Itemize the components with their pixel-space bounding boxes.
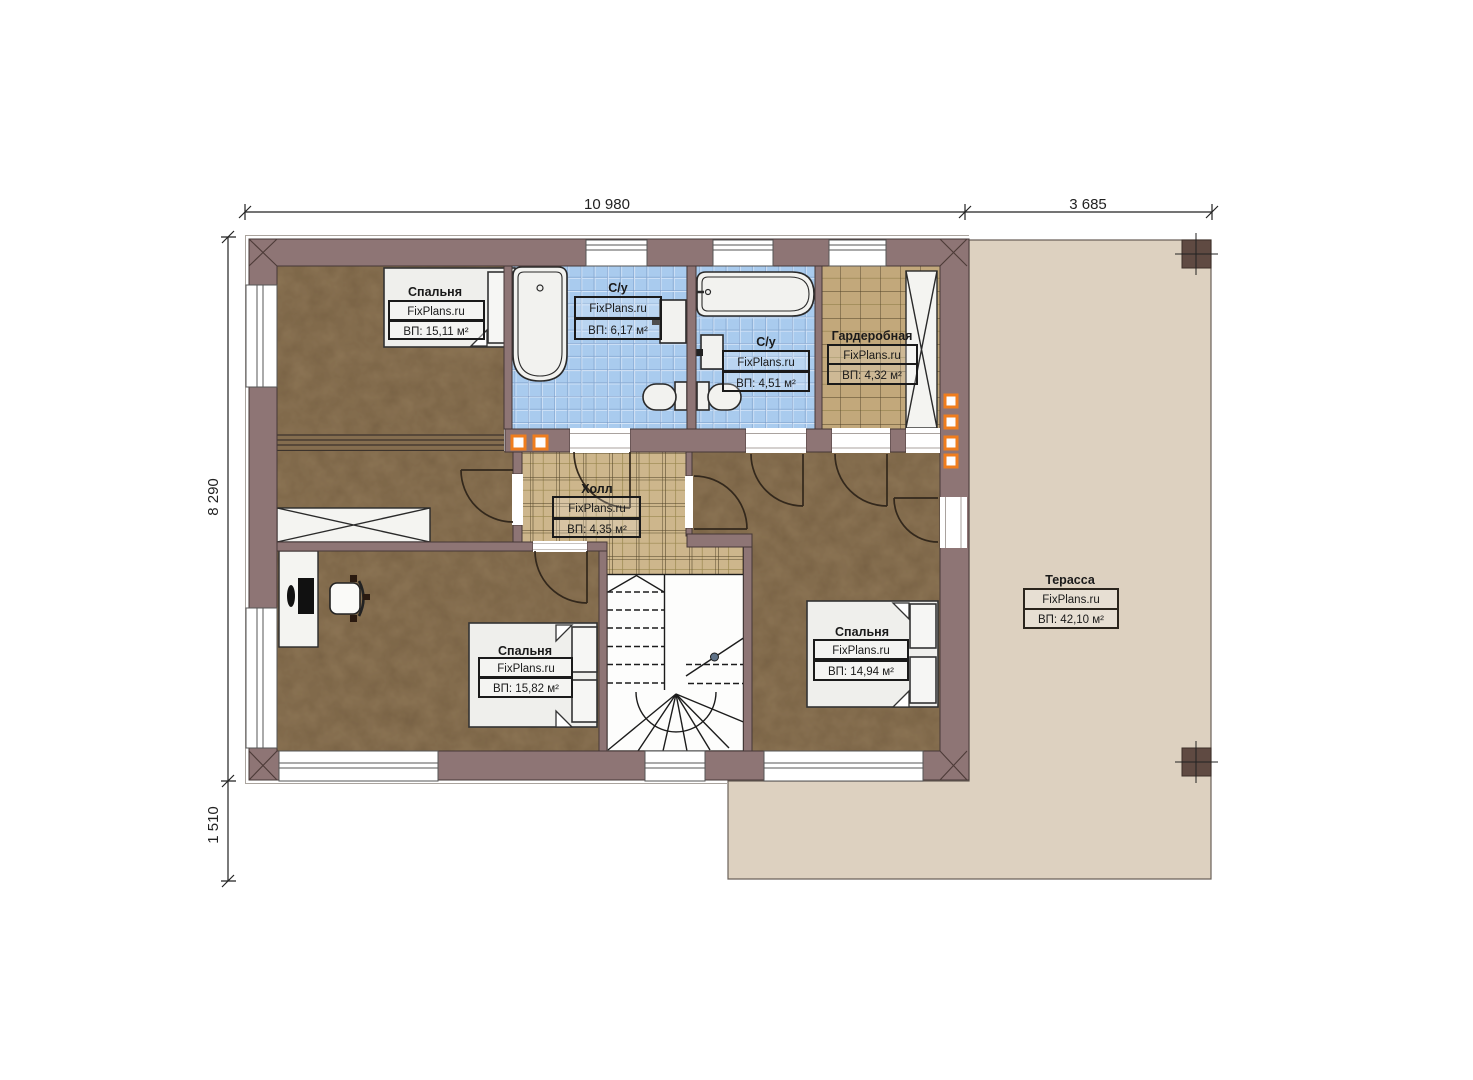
svg-text:10 980: 10 980: [584, 196, 630, 213]
svg-text:FixPlans.ru: FixPlans.ru: [407, 306, 465, 318]
svg-text:Спальня: Спальня: [498, 644, 552, 658]
svg-text:ВП: 4,51 м²: ВП: 4,51 м²: [736, 378, 796, 390]
svg-text:FixPlans.ru: FixPlans.ru: [1042, 594, 1100, 606]
svg-text:ВП: 6,17 м²: ВП: 6,17 м²: [588, 325, 648, 337]
svg-text:ВП: 15,82 м²: ВП: 15,82 м²: [493, 683, 559, 695]
svg-text:ВП: 15,11 м²: ВП: 15,11 м²: [403, 326, 468, 338]
svg-text:С/у: С/у: [756, 335, 776, 349]
svg-text:FixPlans.ru: FixPlans.ru: [568, 503, 626, 515]
svg-text:1 510: 1 510: [205, 806, 222, 844]
svg-text:Спальня: Спальня: [408, 285, 462, 299]
svg-text:FixPlans.ru: FixPlans.ru: [589, 303, 647, 315]
svg-text:Холл: Холл: [581, 482, 612, 496]
svg-text:8 290: 8 290: [205, 478, 222, 516]
svg-text:FixPlans.ru: FixPlans.ru: [843, 350, 901, 362]
svg-text:ВП: 42,10 м²: ВП: 42,10 м²: [1038, 614, 1104, 626]
svg-text:3 685: 3 685: [1069, 196, 1107, 213]
svg-text:ВП: 4,35 м²: ВП: 4,35 м²: [567, 524, 627, 536]
svg-text:Спальня: Спальня: [835, 625, 889, 639]
svg-text:FixPlans.ru: FixPlans.ru: [737, 357, 795, 369]
svg-text:FixPlans.ru: FixPlans.ru: [497, 663, 555, 675]
svg-text:Гардеробная: Гардеробная: [832, 329, 913, 343]
svg-text:С/у: С/у: [608, 281, 628, 295]
svg-text:ВП: 4,32 м²: ВП: 4,32 м²: [842, 370, 902, 382]
svg-text:Терасса: Терасса: [1045, 573, 1096, 587]
svg-text:ВП: 14,94 м²: ВП: 14,94 м²: [828, 666, 894, 678]
svg-text:FixPlans.ru: FixPlans.ru: [832, 645, 890, 657]
